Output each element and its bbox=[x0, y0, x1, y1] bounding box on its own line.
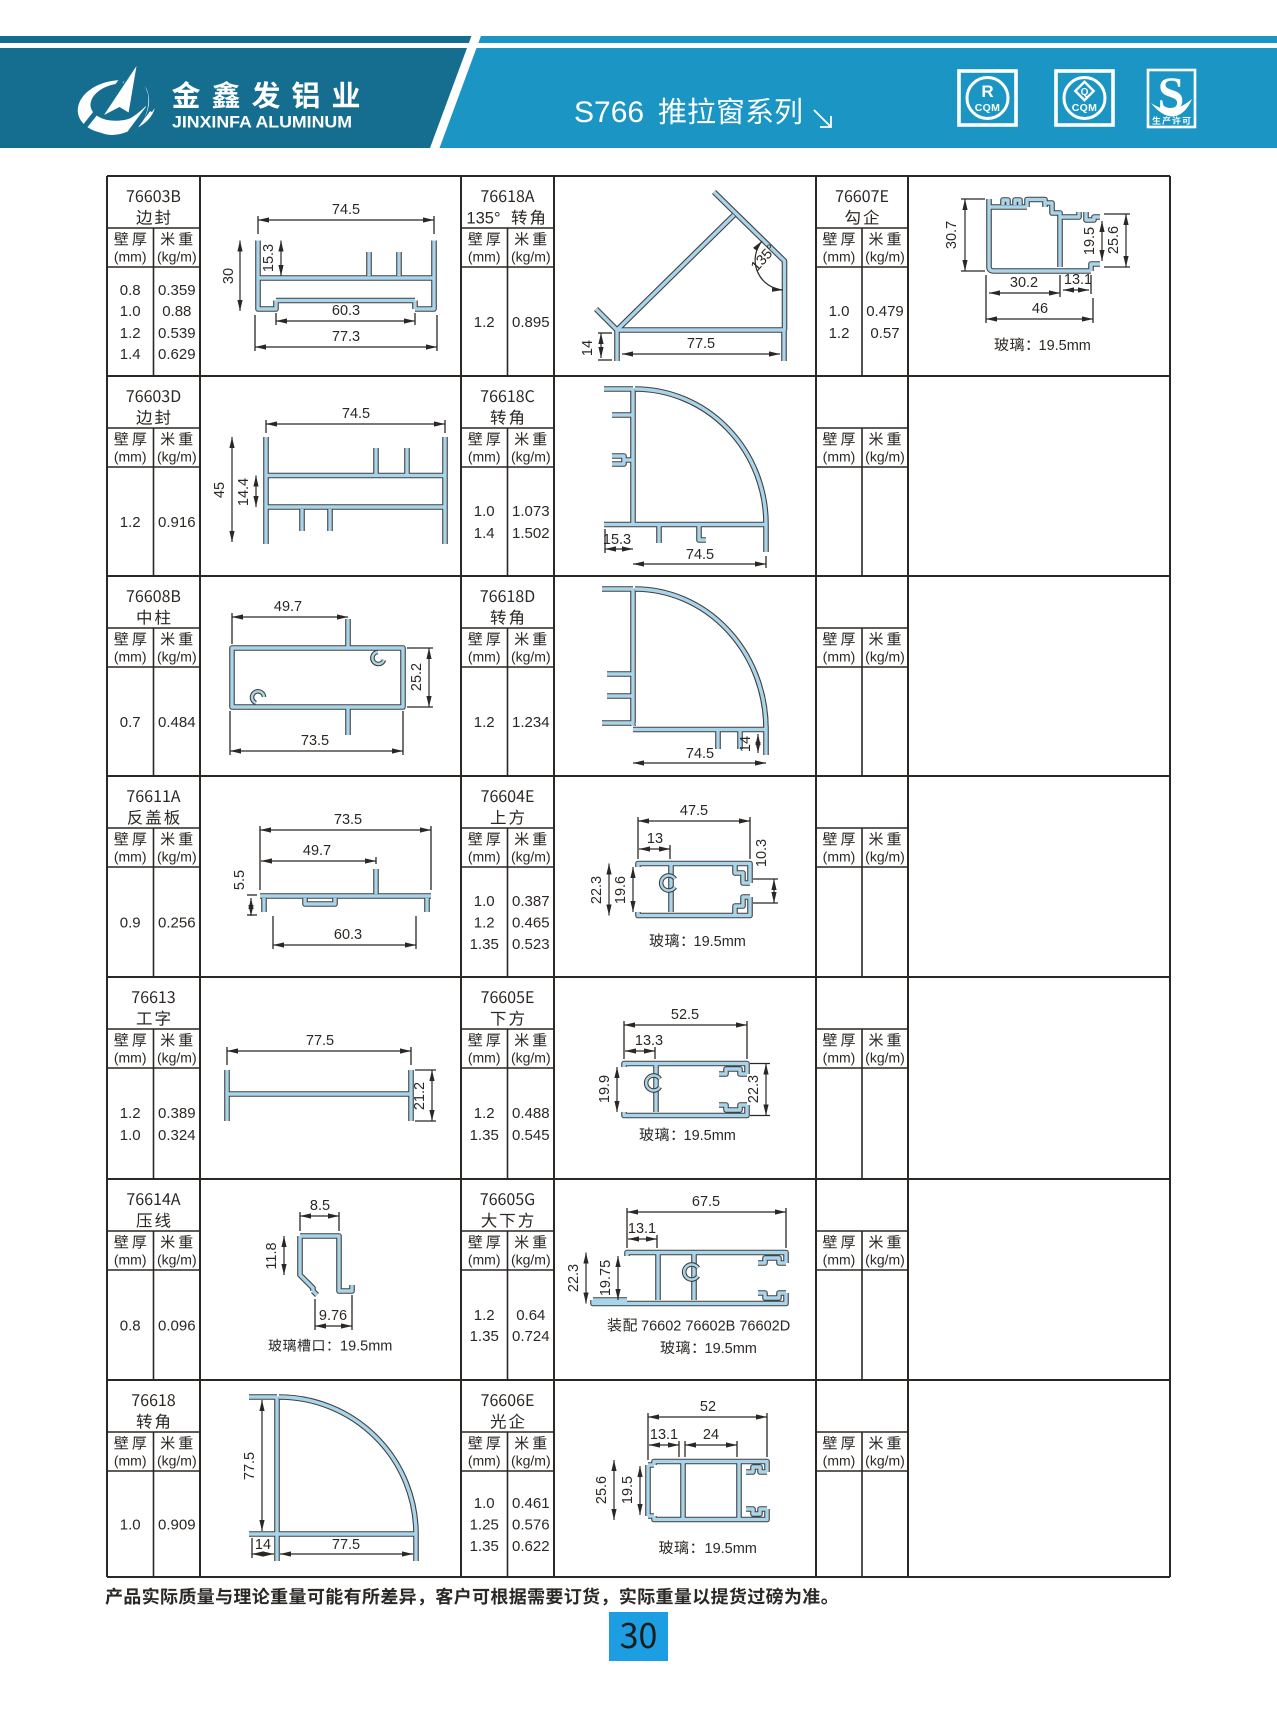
svg-text:1.2: 1.2 bbox=[120, 514, 141, 531]
svg-text:0.488: 0.488 bbox=[512, 1105, 550, 1122]
svg-text:1.073: 1.073 bbox=[512, 503, 550, 520]
svg-text:(kg/m): (kg/m) bbox=[865, 1050, 905, 1066]
svg-text:14: 14 bbox=[255, 1537, 271, 1553]
svg-text:0.7: 0.7 bbox=[120, 714, 141, 731]
svg-text:73.5: 73.5 bbox=[334, 812, 362, 828]
svg-text:22.3: 22.3 bbox=[566, 1264, 582, 1292]
svg-text:49.7: 49.7 bbox=[303, 843, 331, 859]
svg-text:(kg/m): (kg/m) bbox=[865, 249, 905, 265]
svg-text:0.479: 0.479 bbox=[866, 303, 904, 320]
svg-text:60.3: 60.3 bbox=[334, 927, 362, 943]
svg-text:(kg/m): (kg/m) bbox=[511, 449, 551, 465]
svg-text:0.629: 0.629 bbox=[158, 346, 196, 363]
svg-text:14.4: 14.4 bbox=[236, 478, 252, 506]
svg-text:1.502: 1.502 bbox=[512, 525, 550, 542]
svg-text:(kg/m): (kg/m) bbox=[157, 1050, 197, 1066]
svg-text:0.359: 0.359 bbox=[158, 282, 196, 299]
svg-text:1.2: 1.2 bbox=[474, 915, 495, 932]
svg-text:25.6: 25.6 bbox=[594, 1476, 610, 1504]
svg-text:1.0: 1.0 bbox=[120, 1517, 141, 1534]
svg-text:19.5mm: 19.5mm bbox=[705, 1541, 757, 1557]
svg-text:14: 14 bbox=[580, 340, 596, 356]
svg-text:0.545: 0.545 bbox=[512, 1127, 550, 1144]
svg-text:(kg/m): (kg/m) bbox=[865, 1252, 905, 1268]
svg-text:5.5: 5.5 bbox=[232, 870, 248, 890]
svg-text:Q: Q bbox=[1081, 87, 1089, 98]
svg-text:1.2: 1.2 bbox=[120, 1105, 141, 1122]
svg-text:1.0: 1.0 bbox=[120, 1127, 141, 1144]
svg-text:19.5: 19.5 bbox=[1082, 227, 1098, 255]
svg-text:22.3: 22.3 bbox=[589, 876, 605, 904]
svg-text:(mm): (mm) bbox=[114, 1252, 147, 1268]
svg-text:1.0: 1.0 bbox=[829, 303, 850, 320]
svg-text:0.523: 0.523 bbox=[512, 936, 550, 953]
svg-text:19.75: 19.75 bbox=[598, 1260, 614, 1296]
svg-text:14: 14 bbox=[738, 736, 754, 752]
svg-text:(kg/m): (kg/m) bbox=[511, 649, 551, 665]
svg-text:135°: 135° bbox=[466, 210, 500, 228]
svg-text:1.35: 1.35 bbox=[470, 1127, 499, 1144]
svg-text:(mm): (mm) bbox=[114, 1050, 147, 1066]
svg-text:13.1: 13.1 bbox=[628, 1221, 656, 1237]
svg-text:25.2: 25.2 bbox=[409, 663, 425, 691]
svg-text:0.9: 0.9 bbox=[120, 915, 141, 932]
svg-text:19.5mm: 19.5mm bbox=[694, 934, 746, 950]
svg-text:(mm): (mm) bbox=[468, 1453, 501, 1469]
svg-text:1.2: 1.2 bbox=[829, 325, 850, 342]
svg-text:22.3: 22.3 bbox=[746, 1075, 762, 1103]
svg-text:(kg/m): (kg/m) bbox=[157, 449, 197, 465]
svg-text:13.1: 13.1 bbox=[650, 1427, 678, 1443]
svg-text:(kg/m): (kg/m) bbox=[511, 1050, 551, 1066]
svg-text:(mm): (mm) bbox=[823, 1252, 856, 1268]
svg-text:10.3: 10.3 bbox=[754, 839, 770, 867]
svg-text:(mm): (mm) bbox=[468, 849, 501, 865]
svg-text:(mm): (mm) bbox=[823, 1050, 856, 1066]
svg-text:25.6: 25.6 bbox=[1106, 226, 1122, 254]
svg-text:1.2: 1.2 bbox=[474, 1307, 495, 1324]
svg-text:45: 45 bbox=[212, 482, 228, 498]
svg-text:1.0: 1.0 bbox=[120, 303, 141, 320]
svg-text:0.389: 0.389 bbox=[158, 1105, 196, 1122]
svg-text:0.576: 0.576 bbox=[512, 1517, 550, 1534]
svg-text:CQM: CQM bbox=[1072, 102, 1097, 114]
svg-text:1.2: 1.2 bbox=[474, 314, 495, 331]
svg-text:(mm): (mm) bbox=[823, 849, 856, 865]
svg-text:19.9: 19.9 bbox=[597, 1075, 613, 1103]
svg-text:0.461: 0.461 bbox=[512, 1495, 550, 1512]
svg-text:(kg/m): (kg/m) bbox=[865, 449, 905, 465]
svg-text:(kg/m): (kg/m) bbox=[157, 849, 197, 865]
svg-text:0.8: 0.8 bbox=[120, 1318, 141, 1335]
svg-text:(kg/m): (kg/m) bbox=[511, 1252, 551, 1268]
svg-text:73.5: 73.5 bbox=[301, 733, 329, 749]
svg-text:(mm): (mm) bbox=[468, 249, 501, 265]
svg-text:0.57: 0.57 bbox=[870, 325, 899, 342]
svg-text:15.3: 15.3 bbox=[603, 532, 631, 548]
svg-text:74.5: 74.5 bbox=[332, 202, 360, 218]
svg-text:1.35: 1.35 bbox=[470, 1538, 499, 1555]
svg-text:1.2: 1.2 bbox=[474, 714, 495, 731]
svg-text:30.7: 30.7 bbox=[944, 221, 960, 249]
svg-text:67.5: 67.5 bbox=[692, 1194, 720, 1210]
svg-text:47.5: 47.5 bbox=[680, 803, 708, 819]
svg-text:1.0: 1.0 bbox=[474, 503, 495, 520]
svg-text:0.64: 0.64 bbox=[516, 1307, 545, 1324]
svg-text:(kg/m): (kg/m) bbox=[865, 649, 905, 665]
svg-text:(kg/m): (kg/m) bbox=[865, 1453, 905, 1469]
svg-text:8.5: 8.5 bbox=[310, 1198, 330, 1214]
svg-text:24: 24 bbox=[703, 1427, 719, 1443]
svg-text:77.5: 77.5 bbox=[306, 1033, 334, 1049]
svg-text:0.324: 0.324 bbox=[158, 1127, 196, 1144]
svg-text:0.539: 0.539 bbox=[158, 325, 196, 342]
svg-text:(kg/m): (kg/m) bbox=[157, 249, 197, 265]
svg-text:11.8: 11.8 bbox=[264, 1242, 280, 1269]
svg-text:74.5: 74.5 bbox=[686, 547, 714, 563]
svg-text:CQM: CQM bbox=[975, 102, 1000, 114]
svg-text:(kg/m): (kg/m) bbox=[157, 1252, 197, 1268]
svg-text:(kg/m): (kg/m) bbox=[511, 1453, 551, 1469]
svg-text:(mm): (mm) bbox=[468, 1252, 501, 1268]
svg-text:JINXINFA ALUMINUM: JINXINFA ALUMINUM bbox=[172, 114, 352, 132]
svg-text:1.2: 1.2 bbox=[474, 1105, 495, 1122]
svg-text:0.622: 0.622 bbox=[512, 1538, 550, 1555]
svg-text:77.3: 77.3 bbox=[332, 329, 360, 345]
svg-text:52.5: 52.5 bbox=[671, 1007, 699, 1023]
svg-text:(mm): (mm) bbox=[823, 449, 856, 465]
svg-text:77.5: 77.5 bbox=[687, 336, 715, 352]
svg-text:(mm): (mm) bbox=[114, 649, 147, 665]
svg-text:19.5mm: 19.5mm bbox=[684, 1128, 736, 1144]
svg-text:0.465: 0.465 bbox=[512, 915, 550, 932]
svg-text:19.5mm: 19.5mm bbox=[1039, 338, 1091, 354]
svg-text:S766: S766 bbox=[574, 96, 644, 129]
svg-text:(mm): (mm) bbox=[114, 1453, 147, 1469]
svg-text:1.35: 1.35 bbox=[470, 936, 499, 953]
svg-text:(mm): (mm) bbox=[114, 449, 147, 465]
svg-text:0.484: 0.484 bbox=[158, 714, 196, 731]
svg-text:1.2: 1.2 bbox=[120, 325, 141, 342]
svg-text:0.096: 0.096 bbox=[158, 1318, 196, 1335]
svg-text:(mm): (mm) bbox=[468, 1050, 501, 1066]
svg-text:(mm): (mm) bbox=[114, 849, 147, 865]
svg-text:0.88: 0.88 bbox=[162, 303, 191, 320]
svg-text:1.0: 1.0 bbox=[474, 893, 495, 910]
svg-text:0.909: 0.909 bbox=[158, 1517, 196, 1534]
svg-text:(mm): (mm) bbox=[114, 249, 147, 265]
svg-text:R: R bbox=[981, 82, 993, 101]
svg-text:21.2: 21.2 bbox=[412, 1082, 428, 1110]
svg-text:0.387: 0.387 bbox=[512, 893, 550, 910]
svg-text:1.0: 1.0 bbox=[474, 1495, 495, 1512]
svg-text:1.25: 1.25 bbox=[470, 1517, 499, 1534]
svg-text:0.256: 0.256 bbox=[158, 915, 196, 932]
svg-text:0.724: 0.724 bbox=[512, 1328, 550, 1345]
svg-text:1.4: 1.4 bbox=[120, 346, 141, 363]
svg-text:30.2: 30.2 bbox=[1010, 275, 1038, 291]
svg-text:(kg/m): (kg/m) bbox=[157, 649, 197, 665]
svg-text:0.916: 0.916 bbox=[158, 514, 196, 531]
svg-text:60.3: 60.3 bbox=[332, 303, 360, 319]
svg-text:(kg/m): (kg/m) bbox=[865, 849, 905, 865]
svg-text:30: 30 bbox=[221, 268, 237, 284]
svg-text:9.76: 9.76 bbox=[319, 1308, 347, 1324]
svg-text:(mm): (mm) bbox=[823, 1453, 856, 1469]
svg-text:(kg/m): (kg/m) bbox=[511, 849, 551, 865]
svg-text:0.8: 0.8 bbox=[120, 282, 141, 299]
svg-text:52: 52 bbox=[700, 1399, 716, 1415]
svg-text:77.5: 77.5 bbox=[332, 1537, 360, 1553]
svg-text:19.6: 19.6 bbox=[613, 876, 629, 904]
svg-text:13.3: 13.3 bbox=[635, 1033, 663, 1049]
svg-text:1.234: 1.234 bbox=[512, 714, 550, 731]
svg-text:(kg/m): (kg/m) bbox=[157, 1453, 197, 1469]
svg-text:19.5mm: 19.5mm bbox=[705, 1341, 757, 1357]
svg-text:19.5: 19.5 bbox=[620, 1476, 636, 1504]
svg-text:49.7: 49.7 bbox=[274, 599, 302, 615]
svg-text:19.5mm: 19.5mm bbox=[340, 1339, 392, 1355]
svg-text:74.5: 74.5 bbox=[342, 406, 370, 422]
svg-text:(mm): (mm) bbox=[468, 649, 501, 665]
svg-text:(mm): (mm) bbox=[823, 249, 856, 265]
svg-text:76602 76602B 76602D: 76602 76602B 76602D bbox=[641, 1319, 790, 1335]
svg-text:15.3: 15.3 bbox=[261, 244, 277, 272]
svg-text:13.1: 13.1 bbox=[1064, 272, 1092, 288]
svg-text:46: 46 bbox=[1032, 301, 1048, 317]
svg-text:(kg/m): (kg/m) bbox=[511, 249, 551, 265]
svg-text:(mm): (mm) bbox=[468, 449, 501, 465]
svg-text:1.4: 1.4 bbox=[474, 525, 495, 542]
svg-text:77.5: 77.5 bbox=[242, 1452, 258, 1480]
svg-text:0.895: 0.895 bbox=[512, 314, 550, 331]
svg-text:(mm): (mm) bbox=[823, 649, 856, 665]
svg-text:74.5: 74.5 bbox=[686, 746, 714, 762]
svg-text:1.35: 1.35 bbox=[470, 1328, 499, 1345]
svg-text:13: 13 bbox=[647, 831, 663, 847]
